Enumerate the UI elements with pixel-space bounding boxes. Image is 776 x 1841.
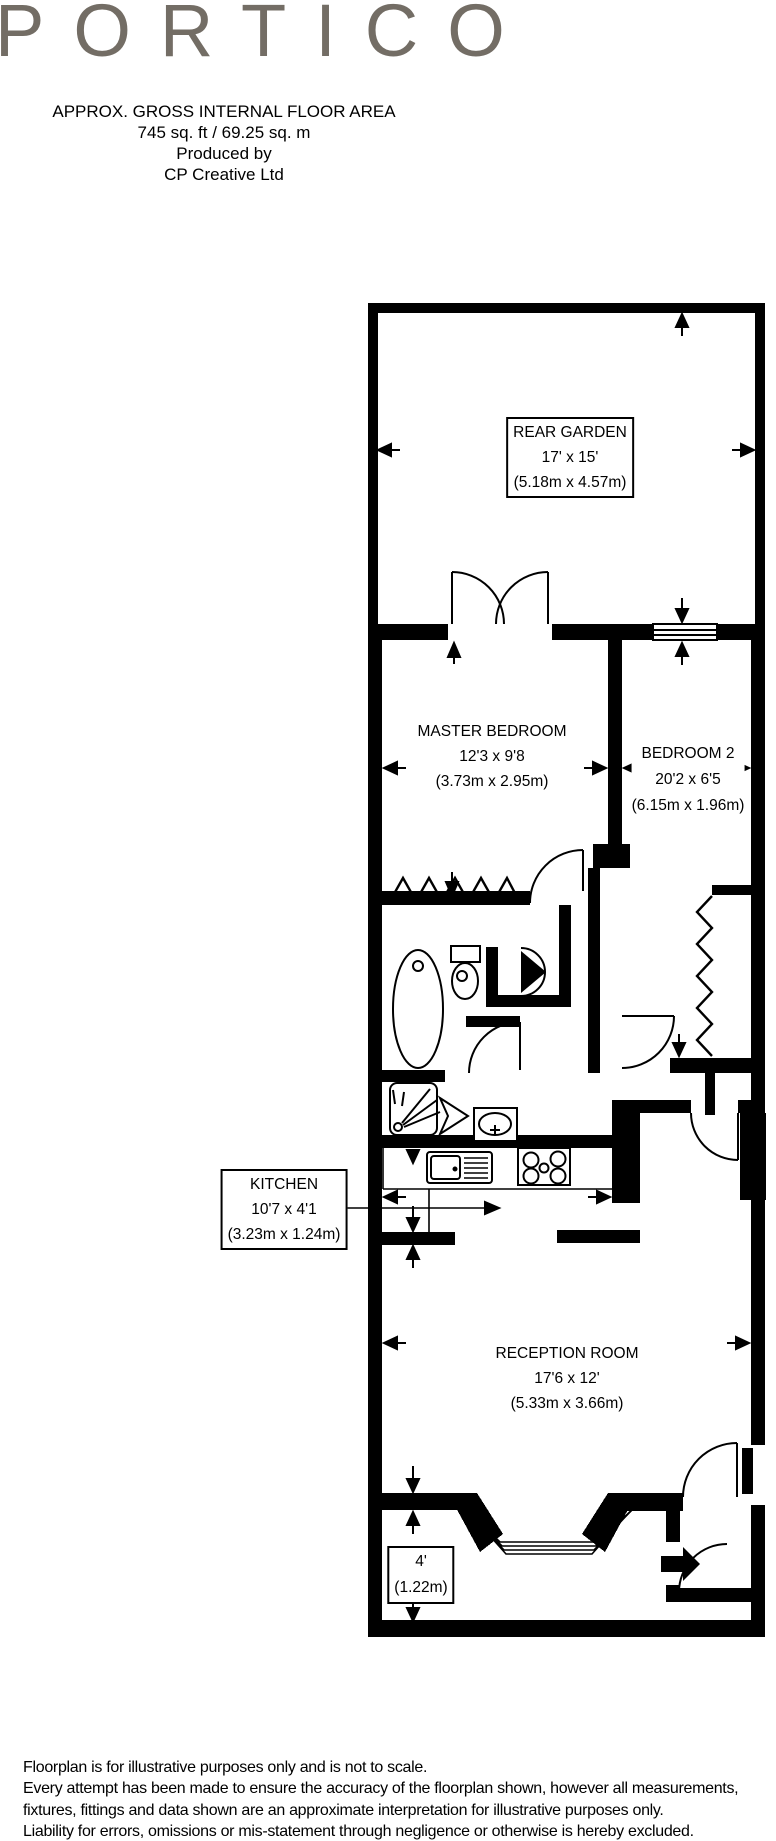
garden-french-doors bbox=[452, 572, 548, 624]
bathtub bbox=[393, 950, 443, 1068]
toilet bbox=[451, 946, 480, 999]
disclaimer-line: fixtures, fittings and data shown are an… bbox=[23, 1800, 763, 1821]
room-size-metric: (3.73m x 2.95m) bbox=[418, 769, 567, 794]
disclaimer-line: Floorplan is for illustrative purposes o… bbox=[23, 1757, 763, 1778]
master-bedroom-door bbox=[530, 850, 583, 903]
kitchen-sink bbox=[427, 1152, 492, 1183]
room-size-imperial: 17'6 x 12' bbox=[496, 1366, 639, 1391]
room-label-master-bedroom: MASTER BEDROOM 12'3 x 9'8 (3.73m x 2.95m… bbox=[418, 719, 567, 794]
room-label-kitchen: KITCHEN 10'7 x 4'1 (3.23m x 1.24m) bbox=[221, 1169, 348, 1250]
bay-depth-label: 4' (1.22m) bbox=[387, 1546, 454, 1604]
room-size-metric: (5.33m x 3.66m) bbox=[496, 1391, 639, 1416]
room-size-imperial: 12'3 x 9'8 bbox=[418, 744, 567, 769]
disclaimer-line: Every attempt has been made to ensure th… bbox=[23, 1778, 763, 1799]
room-label-rear-garden: REAR GARDEN 17' x 15' (5.18m x 4.57m) bbox=[506, 417, 634, 498]
garden-wall-top bbox=[368, 303, 765, 313]
room-size-imperial: 17' x 15' bbox=[513, 445, 627, 470]
bay-size-metric: (1.22m) bbox=[394, 1575, 447, 1601]
garden-wall-left bbox=[368, 303, 378, 640]
entrance-arrow bbox=[661, 1547, 700, 1581]
garden-wall-right bbox=[755, 303, 765, 640]
bedroom2-window bbox=[653, 624, 717, 640]
front-door bbox=[683, 1443, 737, 1497]
floorplan-page: PORTICO APPROX. GROSS INTERNAL FLOOR ARE… bbox=[0, 0, 776, 1841]
disclaimer-line: Liability for errors, omissions or mis-s… bbox=[23, 1821, 763, 1841]
disclaimer: Floorplan is for illustrative purposes o… bbox=[23, 1757, 763, 1841]
room-name: REAR GARDEN bbox=[513, 420, 627, 445]
room-name: RECEPTION ROOM bbox=[496, 1341, 639, 1366]
room-size-metric: (6.15m x 1.96m) bbox=[632, 793, 745, 819]
room-size-imperial: 10'7 x 4'1 bbox=[228, 1197, 341, 1222]
room-label-reception: RECEPTION ROOM 17'6 x 12' (5.33m x 3.66m… bbox=[496, 1341, 639, 1416]
bathroom-sink bbox=[474, 1108, 517, 1141]
shower bbox=[390, 1083, 440, 1135]
bathroom-door bbox=[469, 1022, 520, 1073]
exterior-wall-bottom bbox=[368, 1620, 765, 1637]
room-name: MASTER BEDROOM bbox=[418, 719, 567, 744]
bedroom2-wardrobe bbox=[697, 896, 712, 1056]
room-label-bedroom2: BEDROOM 2 20'2 x 6'5 (6.15m x 1.96m) bbox=[632, 741, 745, 819]
room-size-metric: (5.18m x 4.57m) bbox=[513, 470, 627, 495]
room-name: BEDROOM 2 bbox=[632, 741, 745, 767]
bedroom2-door bbox=[622, 1016, 674, 1068]
room-size-imperial: 20'2 x 6'5 bbox=[632, 767, 745, 793]
exterior-wall-right-upper bbox=[751, 624, 765, 1073]
towel-rail bbox=[440, 1098, 468, 1134]
hob bbox=[518, 1148, 570, 1185]
bay-size-imperial: 4' bbox=[394, 1549, 447, 1575]
exterior-wall-left bbox=[368, 624, 382, 1637]
front-door-leaf bbox=[742, 1448, 753, 1494]
room-name: KITCHEN bbox=[228, 1172, 341, 1197]
room-size-metric: (3.23m x 1.24m) bbox=[228, 1222, 341, 1247]
hall-reception-door bbox=[691, 1113, 738, 1160]
wc-door bbox=[521, 948, 546, 996]
